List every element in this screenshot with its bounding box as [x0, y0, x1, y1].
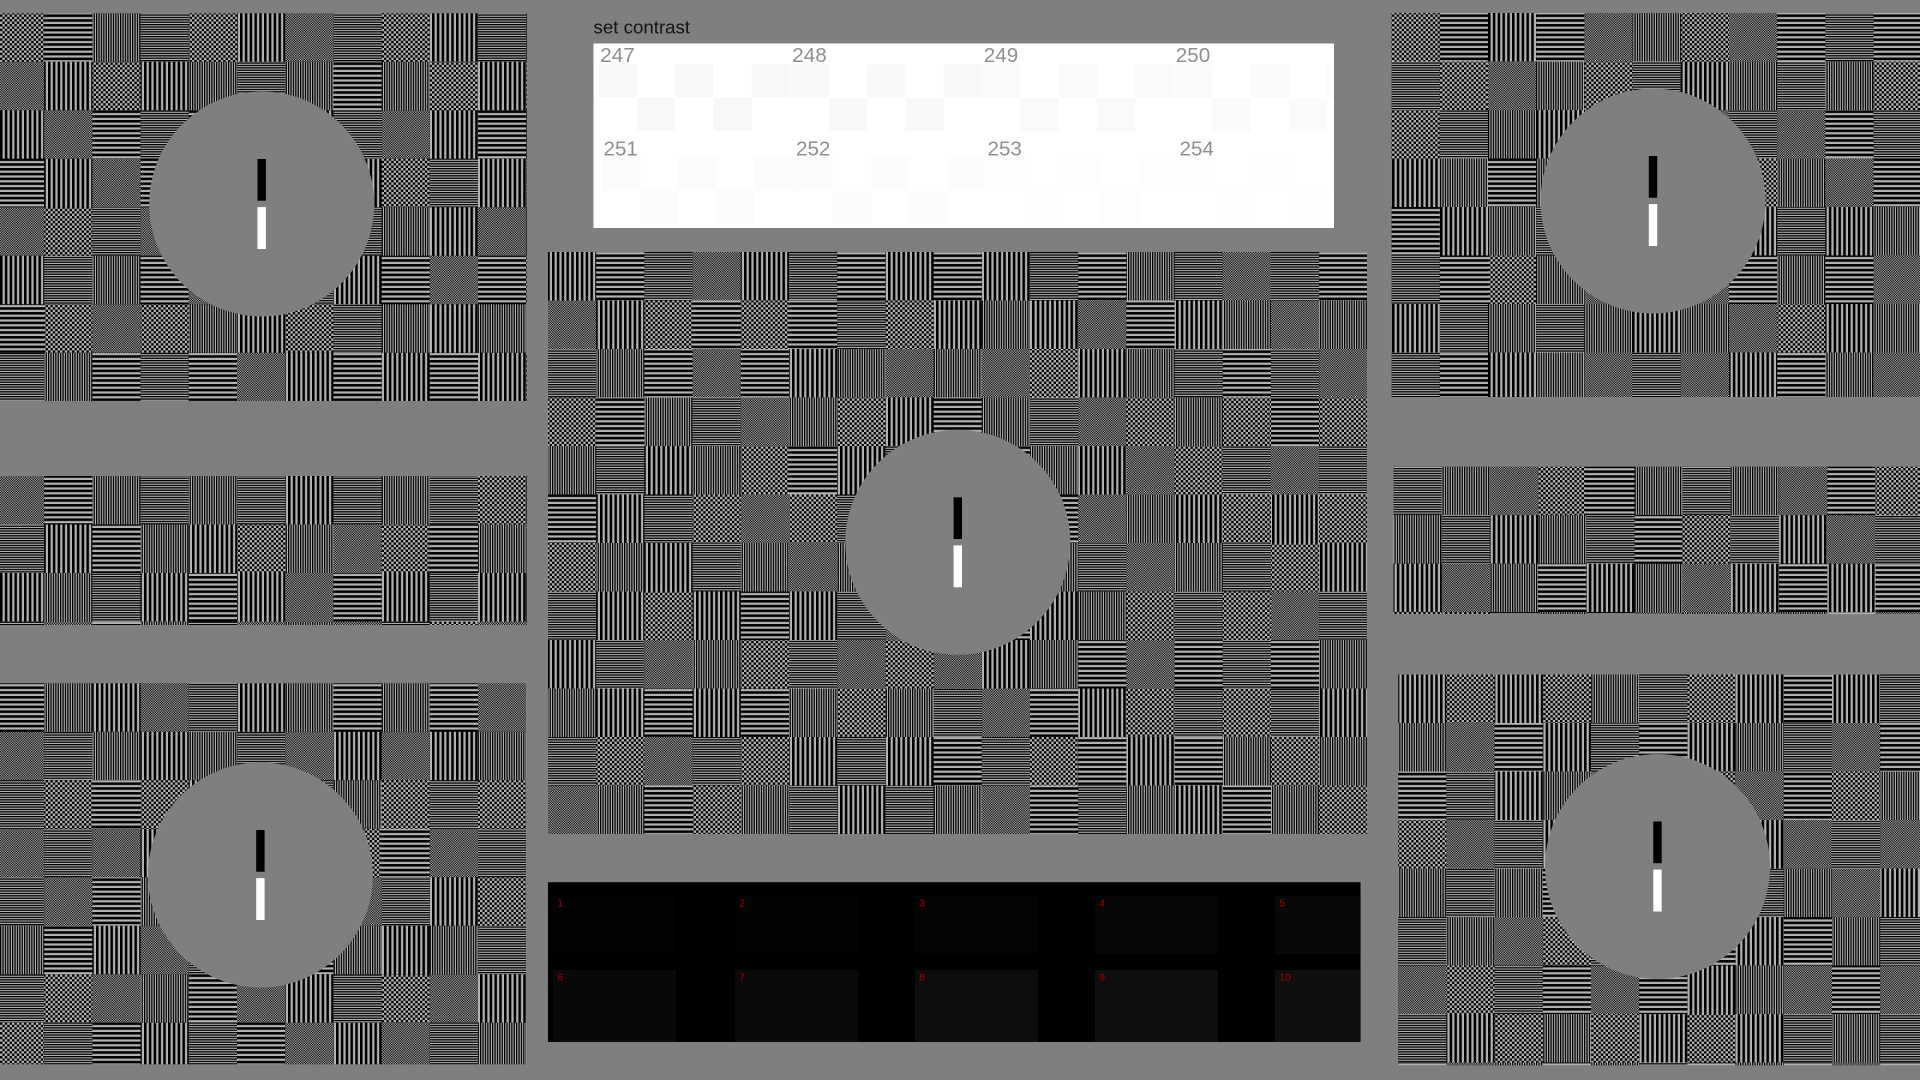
svg-text:249: 249 [984, 44, 1018, 67]
svg-text:9: 9 [1099, 972, 1105, 983]
svg-text:7: 7 [739, 972, 745, 983]
svg-text:253: 253 [988, 137, 1022, 160]
svg-text:248: 248 [792, 44, 826, 67]
svg-text:4: 4 [1099, 898, 1105, 909]
svg-text:252: 252 [796, 137, 830, 160]
svg-text:6: 6 [557, 972, 563, 983]
svg-text:5: 5 [1279, 898, 1285, 909]
svg-text:254: 254 [1180, 137, 1214, 160]
svg-text:250: 250 [1176, 44, 1210, 67]
svg-text:251: 251 [604, 137, 638, 160]
svg-text:10: 10 [1279, 972, 1291, 983]
svg-text:247: 247 [600, 44, 634, 67]
svg-text:2: 2 [739, 898, 745, 909]
svg-text:3: 3 [919, 898, 925, 909]
svg-text:1: 1 [557, 898, 563, 909]
svg-text:8: 8 [919, 972, 925, 983]
svg-text:set contrast: set contrast [594, 16, 691, 37]
